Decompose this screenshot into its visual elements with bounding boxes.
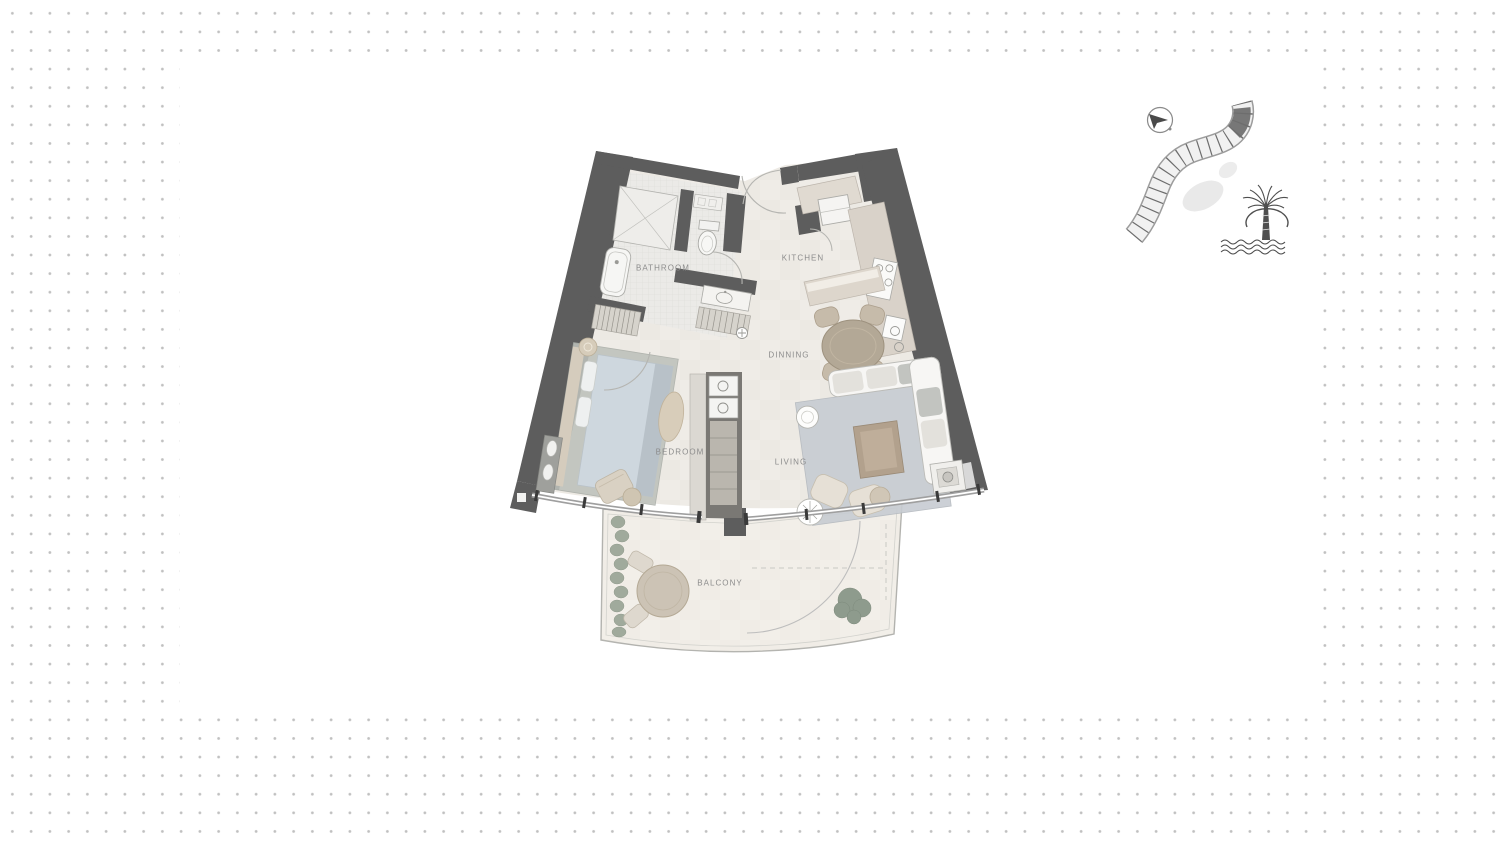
fridge bbox=[818, 195, 852, 226]
column-marker bbox=[737, 328, 748, 339]
floorplan-graphic bbox=[0, 0, 1500, 842]
highlighted-unit bbox=[1234, 108, 1242, 132]
page-background: BATHROOM KITCHEN DINNING BEDROOM LIVING … bbox=[0, 0, 1500, 842]
bedside-lamp bbox=[579, 338, 597, 356]
utility-shaft bbox=[690, 372, 742, 520]
compass-icon bbox=[1148, 108, 1173, 133]
shower bbox=[613, 186, 678, 250]
fireplace-column bbox=[930, 460, 966, 494]
balcony-area bbox=[601, 503, 902, 652]
palm-jumeirah-logo bbox=[1221, 185, 1288, 254]
bedroom-pouf bbox=[623, 488, 641, 506]
